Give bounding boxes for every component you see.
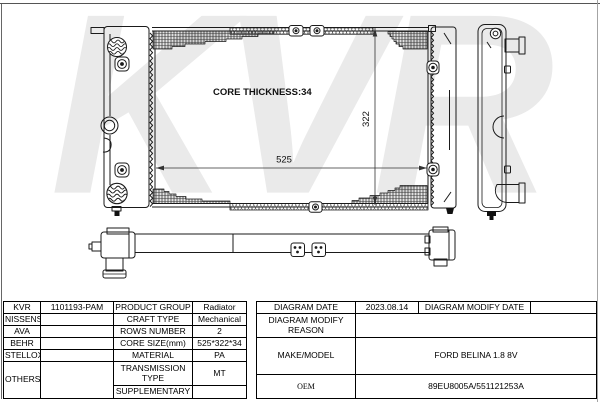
spec-table: KVR 1101193-PAM PRODUCT GROUP Radiator N…	[3, 301, 247, 399]
radiator-bottom-view	[89, 227, 455, 278]
left-tank	[91, 27, 153, 217]
make-model-label-cell: MAKE/MODEL	[257, 338, 356, 375]
right-drain-plug	[446, 208, 454, 214]
part-number-cell	[41, 338, 114, 350]
bottom-right-connector	[425, 227, 455, 266]
core-thickness-label: CORE THICKNESS:34	[213, 87, 312, 98]
spec-label-cell: CORE SIZE(mm)	[114, 338, 193, 350]
bottom-gasket-strip	[230, 204, 428, 210]
part-number-cell	[41, 314, 114, 326]
brand-cell: NISSENS	[4, 314, 41, 326]
dimension-322	[373, 28, 378, 205]
spec-label-cell: SUPPLEMENTARY	[114, 386, 193, 399]
spec-label-cell: MATERIAL	[114, 350, 193, 362]
oem-value-cell: 89EU8005A/551121253A	[356, 375, 597, 399]
part-number-cell	[41, 362, 114, 399]
make-model-value-cell: FORD BELINA 1.8 8V	[356, 338, 597, 375]
fin-blocks	[153, 31, 427, 204]
brand-cell: BEHR	[4, 338, 41, 350]
radiator-front-view	[91, 26, 456, 217]
spec-label-cell: PRODUCT GROUP	[114, 302, 193, 314]
spec-value-cell	[193, 386, 247, 399]
spec-value-cell: 2	[193, 326, 247, 338]
spec-label-cell: ROWS NUMBER	[114, 326, 193, 338]
top-pipe	[505, 39, 519, 52]
core	[152, 26, 428, 213]
side-drain-plug	[487, 211, 496, 216]
spec-label-cell: TRANSMISSION TYPE	[114, 362, 193, 386]
width-dim-label: 525	[276, 155, 292, 166]
brand-cell: KVR	[4, 302, 41, 314]
diagram-date-label-cell: DIAGRAM DATE	[257, 302, 356, 314]
right-tank	[427, 26, 456, 215]
part-number-cell	[41, 350, 114, 362]
oem-label-cell: OEM	[257, 375, 356, 399]
spec-value-cell: 525*322*34	[193, 338, 247, 350]
radiator-side-view	[478, 25, 525, 221]
spec-value-cell: Mechanical	[193, 314, 247, 326]
spec-value-cell: Radiator	[193, 302, 247, 314]
height-dim-label: 322	[361, 111, 372, 127]
bottom-clip	[309, 202, 322, 213]
brand-cell: AVA	[4, 326, 41, 338]
part-number-cell	[41, 326, 114, 338]
left-core-serration	[150, 33, 153, 207]
lower-cap	[106, 183, 127, 203]
mount-eye	[490, 28, 500, 38]
diagram-modify-date-label-cell: DIAGRAM MODIFY DATE	[419, 302, 531, 314]
spec-value-cell: MT	[193, 362, 247, 386]
brand-cell: STELLOX	[4, 350, 41, 362]
dimension-525	[156, 166, 427, 171]
part-number-cell: 1101193-PAM	[41, 302, 114, 314]
spec-value-cell: PA	[193, 350, 247, 362]
brand-cell: OTHERS	[4, 362, 41, 399]
filler-cap	[107, 38, 127, 57]
diagram-modify-date-value-cell	[531, 302, 597, 314]
diagram-date-value-cell: 2023.08.14	[356, 302, 419, 314]
spec-label-cell: CRAFT TYPE	[114, 314, 193, 326]
bottom-clips	[291, 243, 326, 257]
outlet-pipe	[106, 258, 123, 271]
diagram-modify-reason-label-cell: DIAGRAM MODIFY REASON	[257, 314, 356, 338]
bottom-pipe	[495, 185, 519, 203]
info-table: DIAGRAM DATE 2023.08.14 DIAGRAM MODIFY D…	[256, 301, 597, 399]
diagram-modify-reason-value-cell	[356, 314, 597, 338]
bottom-left-connector	[89, 228, 135, 278]
inlet-stub	[91, 28, 104, 34]
